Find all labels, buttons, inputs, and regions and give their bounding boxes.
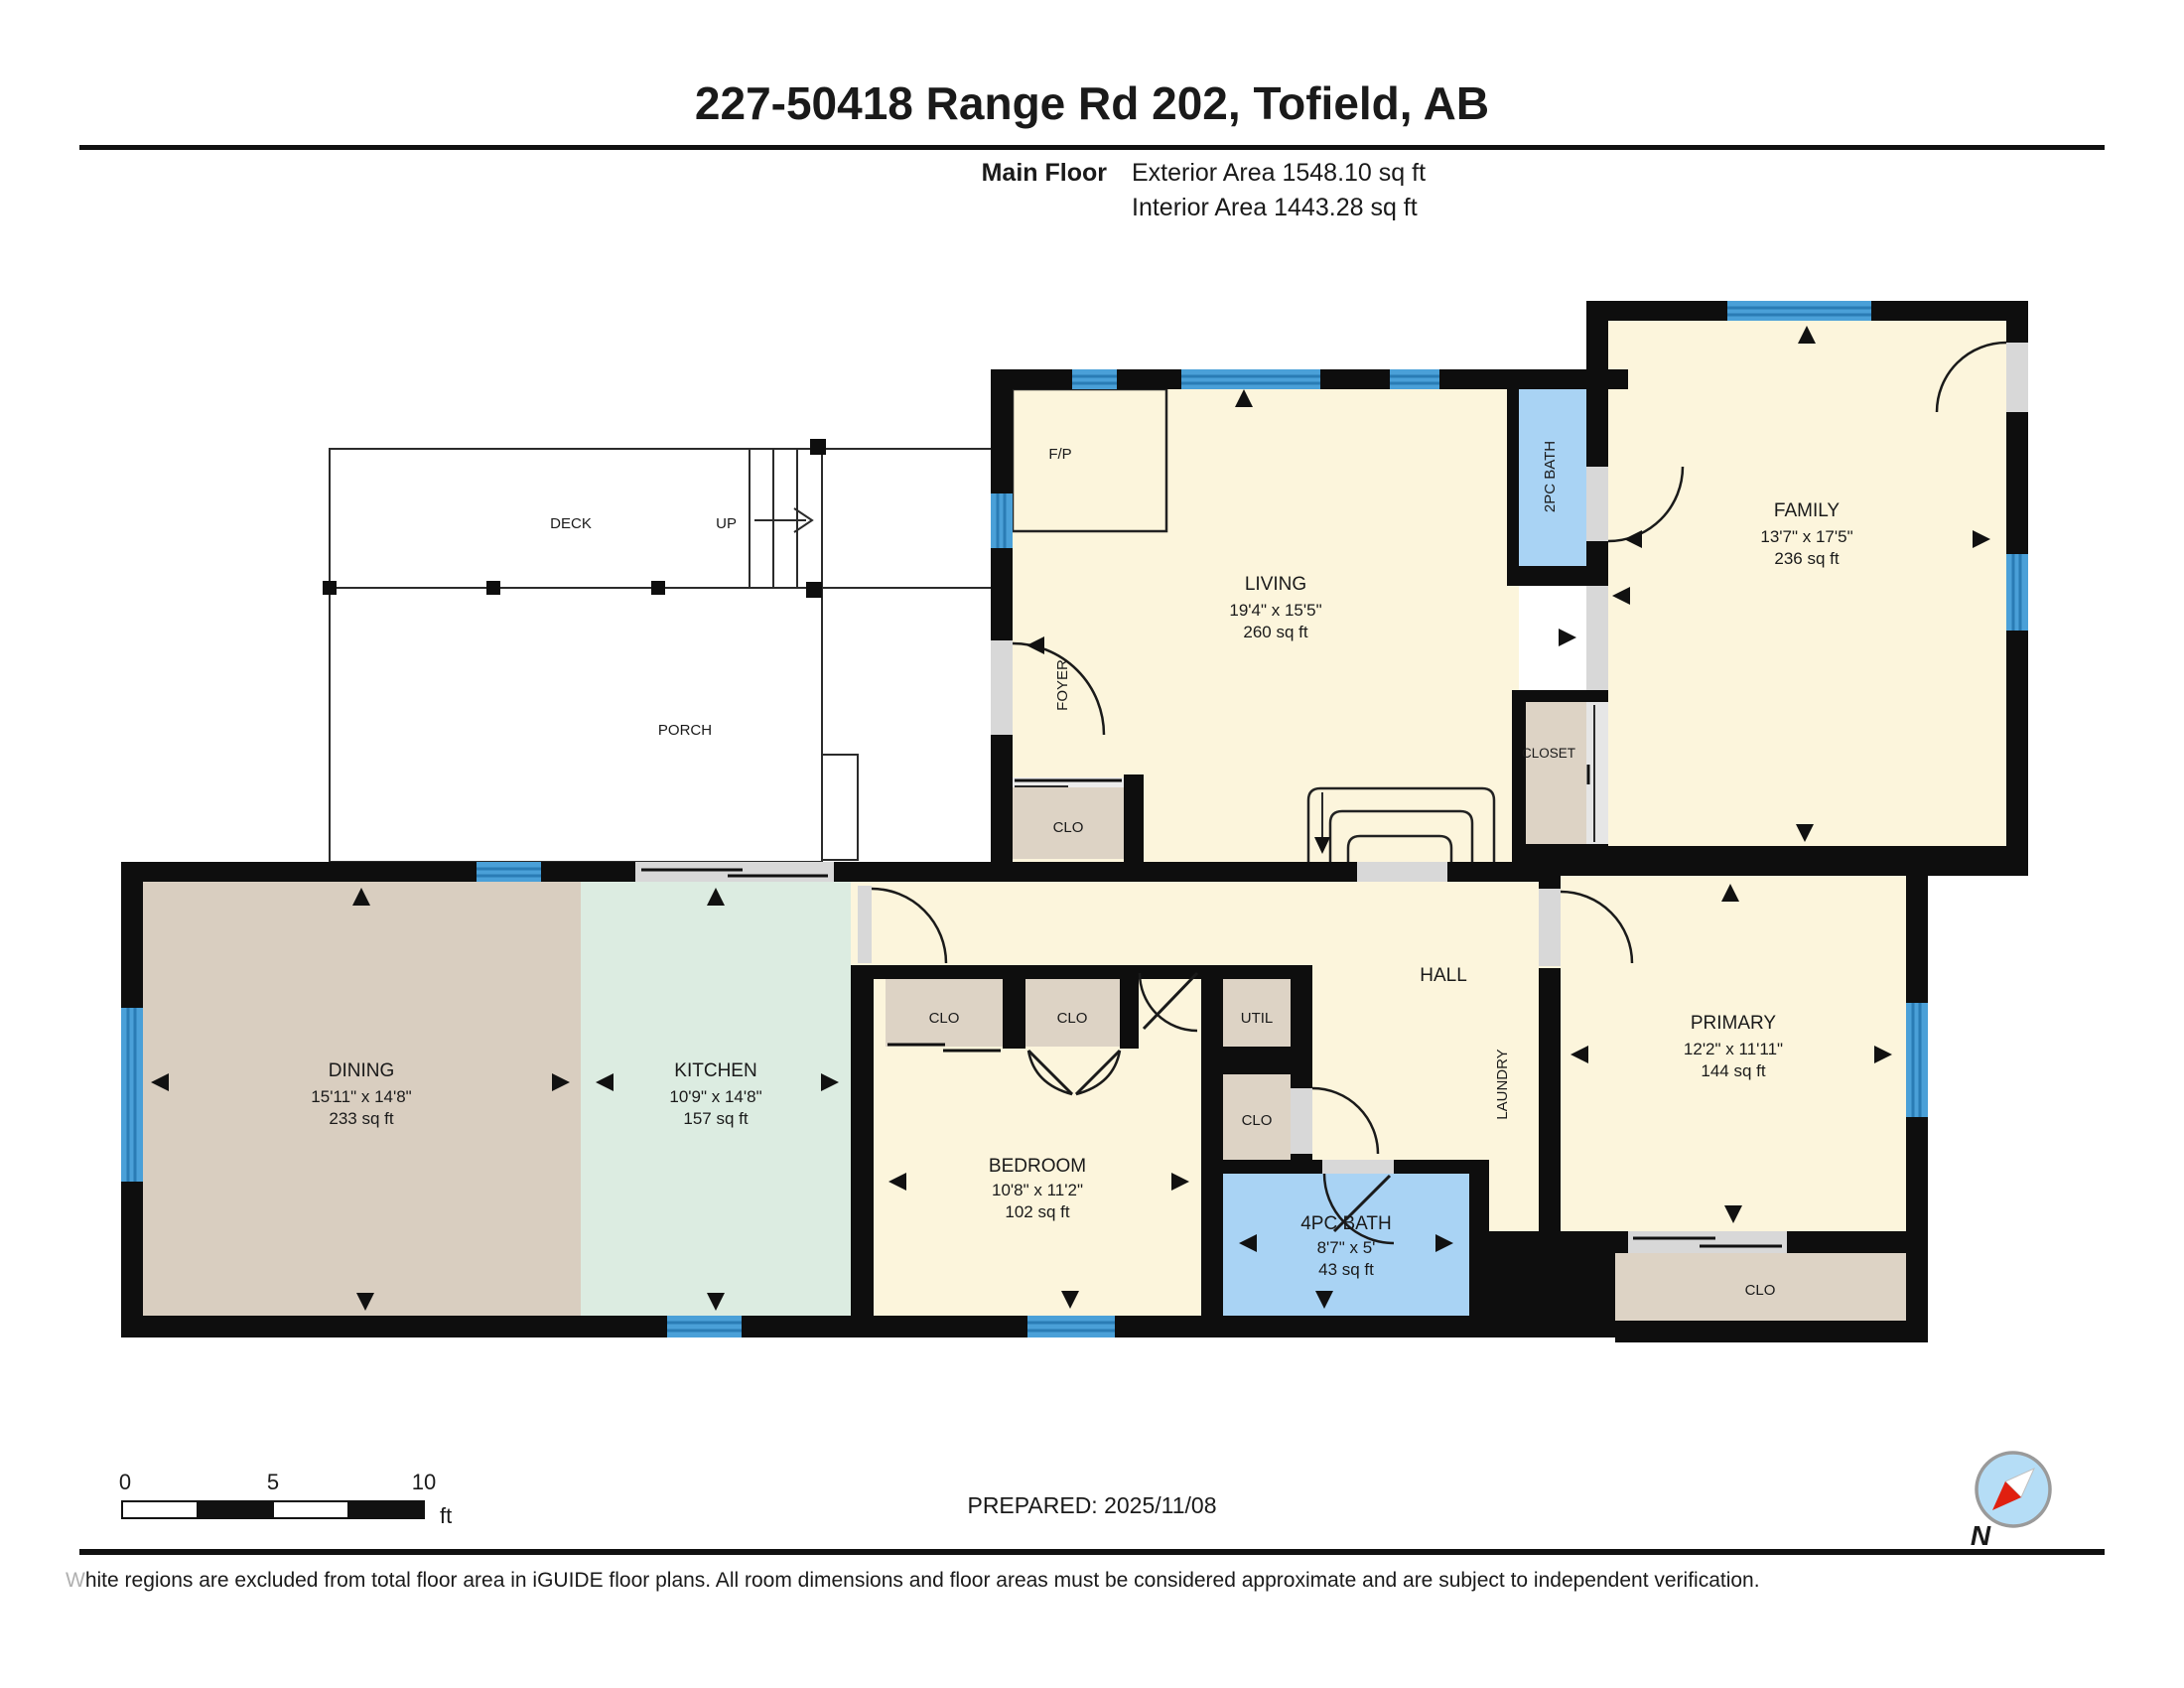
window (1727, 301, 1871, 321)
kitchen-area: 157 sq ft (683, 1109, 748, 1128)
foyer-closet-label: CLO (1053, 819, 1084, 836)
primary-closet-label: CLO (1745, 1282, 1776, 1299)
hall-closet-door-leaf (1291, 1088, 1312, 1154)
window (1027, 1316, 1115, 1337)
bath2-label: 2PC BATH (1542, 441, 1559, 512)
prepared-date: PREPARED: 2025/11/08 (967, 1492, 1216, 1518)
kitchen-dims: 10'9" x 14'8" (669, 1087, 761, 1106)
footer: 0 5 10 ft PREPARED: 2025/11/08 N White r… (66, 1453, 2105, 1592)
living-closet-floor (1526, 702, 1586, 844)
scale-bar: 0 5 10 ft (119, 1470, 452, 1528)
hall-door-leaf (858, 886, 872, 963)
primary-closet-slider (1628, 1231, 1787, 1253)
bath4-label: 4PC BATH (1300, 1213, 1392, 1234)
stairs-opening (1357, 862, 1447, 882)
window (1906, 1003, 1928, 1117)
deck-porch: DECK UP PORCH (323, 439, 993, 862)
family-label: FAMILY (1774, 500, 1840, 521)
hall-closet-label: CLO (1242, 1112, 1273, 1129)
scale-5: 5 (267, 1470, 279, 1494)
porch-step (822, 755, 858, 860)
exterior-area: Exterior Area 1548.10 sq ft (1132, 159, 1426, 187)
scale-0: 0 (119, 1470, 131, 1494)
scale-10: 10 (412, 1470, 436, 1494)
footer-divider (79, 1549, 2105, 1555)
porch-label: PORCH (658, 722, 712, 739)
compass-north-label: N (1971, 1520, 1991, 1551)
scale-unit: ft (440, 1503, 452, 1528)
bath2-door-leaf (1586, 467, 1608, 541)
laundry-label: LAUNDRY (1494, 1049, 1511, 1119)
family-dims: 13'7" x 17'5" (1760, 527, 1852, 546)
primary-door-leaf (1539, 889, 1561, 966)
bedroom-label: BEDROOM (989, 1156, 1086, 1177)
deck-outline (330, 449, 993, 588)
floorplan-page: 227-50418 Range Rd 202, Tofield, AB Main… (0, 0, 2184, 1688)
floor-label: Main Floor (982, 159, 1108, 187)
window (991, 493, 1013, 548)
primary-label: PRIMARY (1691, 1013, 1777, 1034)
page-title: 227-50418 Range Rd 202, Tofield, AB (695, 77, 1489, 129)
kitchen-label: KITCHEN (674, 1060, 756, 1081)
header: 227-50418 Range Rd 202, Tofield, AB Main… (79, 77, 2105, 221)
header-divider (79, 145, 2105, 150)
fireplace-label: F/P (1048, 446, 1071, 463)
living-closet-label: CLOSET (1522, 746, 1575, 761)
living-family-opening (1586, 586, 1608, 690)
interior-area: Interior Area 1443.28 sq ft (1132, 194, 1418, 221)
foyer-door-leaf (991, 640, 1013, 735)
bedroom-closet-a-label: CLO (929, 1010, 960, 1027)
up-label: UP (716, 515, 737, 532)
compass-icon: N (1971, 1453, 2050, 1551)
bedroom-area: 102 sq ft (1005, 1202, 1069, 1221)
dining-area: 233 sq ft (329, 1109, 393, 1128)
window (667, 1316, 742, 1337)
window (1181, 369, 1320, 389)
bath4-dims: 8'7" x 5' (1317, 1238, 1376, 1257)
window (121, 1008, 143, 1182)
window (1072, 369, 1117, 389)
deck-label: DECK (550, 515, 592, 532)
bath4-door-opening (1322, 1160, 1394, 1174)
fireplace-box (1013, 389, 1166, 531)
disclaimer-text: hite regions are excluded from total flo… (85, 1569, 1760, 1592)
primary-area: 144 sq ft (1701, 1061, 1765, 1080)
dining-dims: 15'11" x 14'8" (311, 1087, 411, 1106)
hall-label: HALL (1420, 965, 1467, 986)
primary-dims: 12'2" x 11'11" (1684, 1040, 1783, 1058)
bath4-area: 43 sq ft (1318, 1260, 1374, 1279)
utility-label: UTIL (1241, 1010, 1274, 1027)
window (1390, 369, 1439, 389)
floorplan-canvas: 227-50418 Range Rd 202, Tofield, AB Main… (0, 0, 2184, 1688)
living-dims: 19'4" x 15'5" (1229, 601, 1321, 620)
patio-slider (635, 862, 834, 882)
family-floor (1608, 321, 2006, 846)
bedroom-dims: 10'8" x 11'2" (992, 1181, 1083, 1199)
window (477, 862, 541, 882)
foyer-label: FOYER (1054, 659, 1071, 711)
living-area: 260 sq ft (1243, 623, 1307, 641)
window (2006, 554, 2028, 631)
dining-label: DINING (329, 1060, 395, 1081)
bedroom-closet-b-label: CLO (1057, 1010, 1088, 1027)
living-label: LIVING (1245, 574, 1306, 595)
porch-outline (330, 588, 822, 862)
family-door-leaf (2006, 343, 2028, 412)
disclaimer-first-letter: W (66, 1569, 85, 1592)
family-area: 236 sq ft (1774, 549, 1839, 568)
disclaimer: White regions are excluded from total fl… (66, 1569, 1760, 1592)
